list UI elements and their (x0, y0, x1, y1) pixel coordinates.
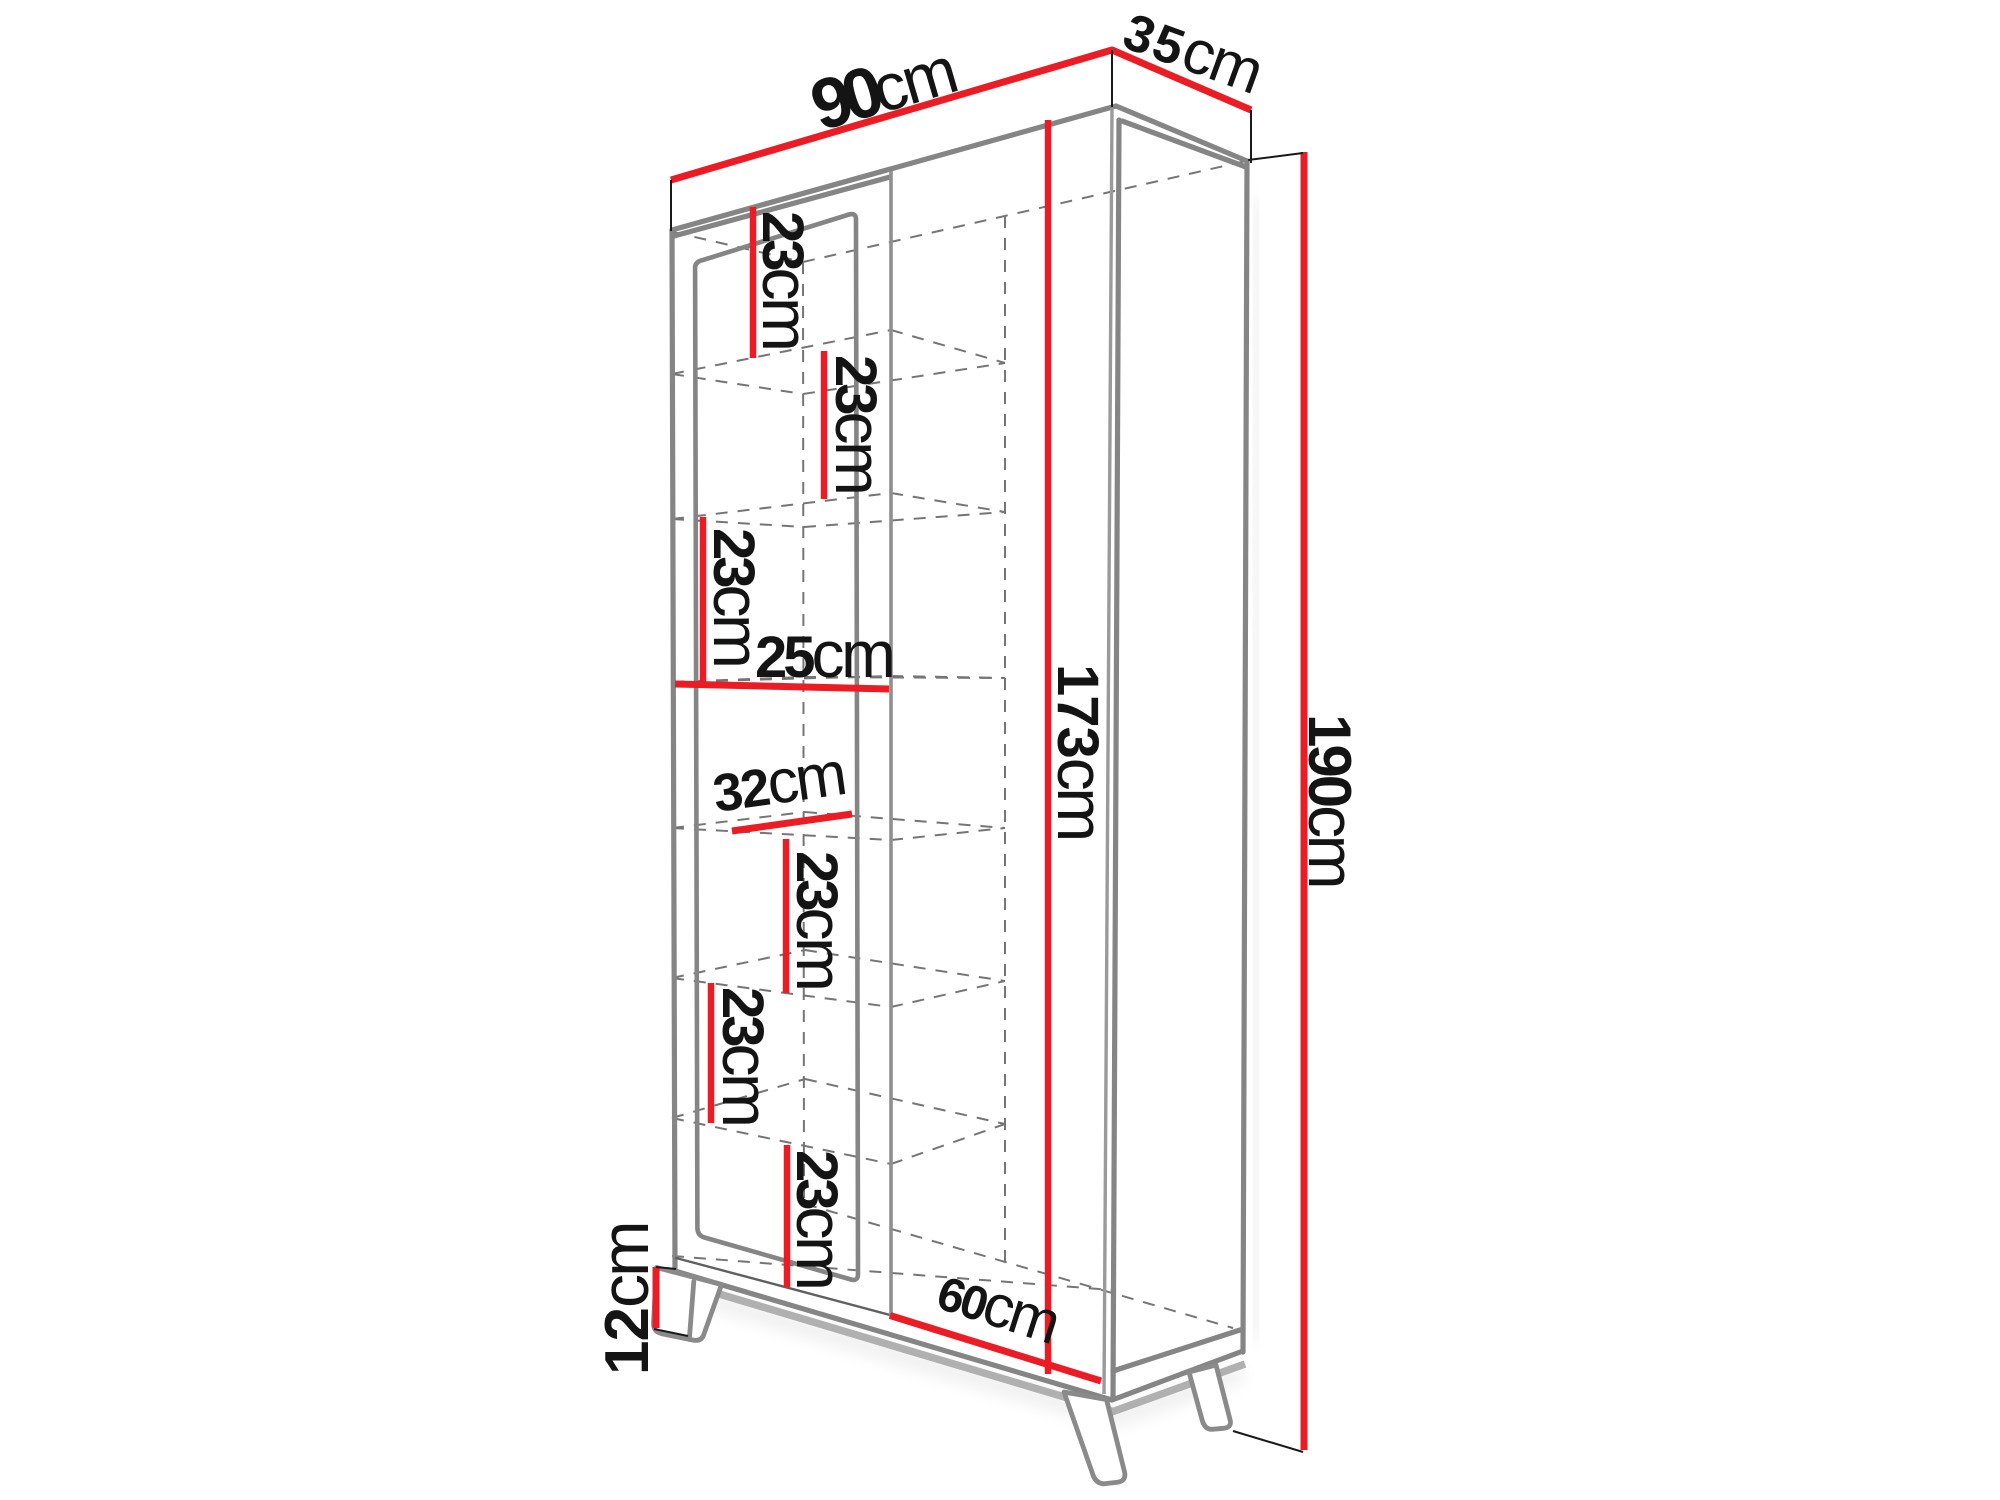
svg-text:23cm: 23cm (700, 528, 774, 666)
svg-text:35cm: 35cm (1115, 0, 1271, 107)
svg-text:23cm: 23cm (783, 1150, 857, 1288)
svg-text:173cm: 173cm (1044, 664, 1118, 839)
svg-text:90cm: 90cm (802, 30, 963, 147)
svg-text:23cm: 23cm (783, 851, 857, 989)
svg-text:23cm: 23cm (822, 355, 896, 493)
svg-text:23cm: 23cm (749, 211, 823, 349)
svg-text:23cm: 23cm (709, 987, 783, 1125)
svg-text:190cm: 190cm (1295, 714, 1369, 886)
svg-text:12cm: 12cm (587, 1223, 663, 1375)
svg-text:25cm: 25cm (755, 617, 893, 691)
